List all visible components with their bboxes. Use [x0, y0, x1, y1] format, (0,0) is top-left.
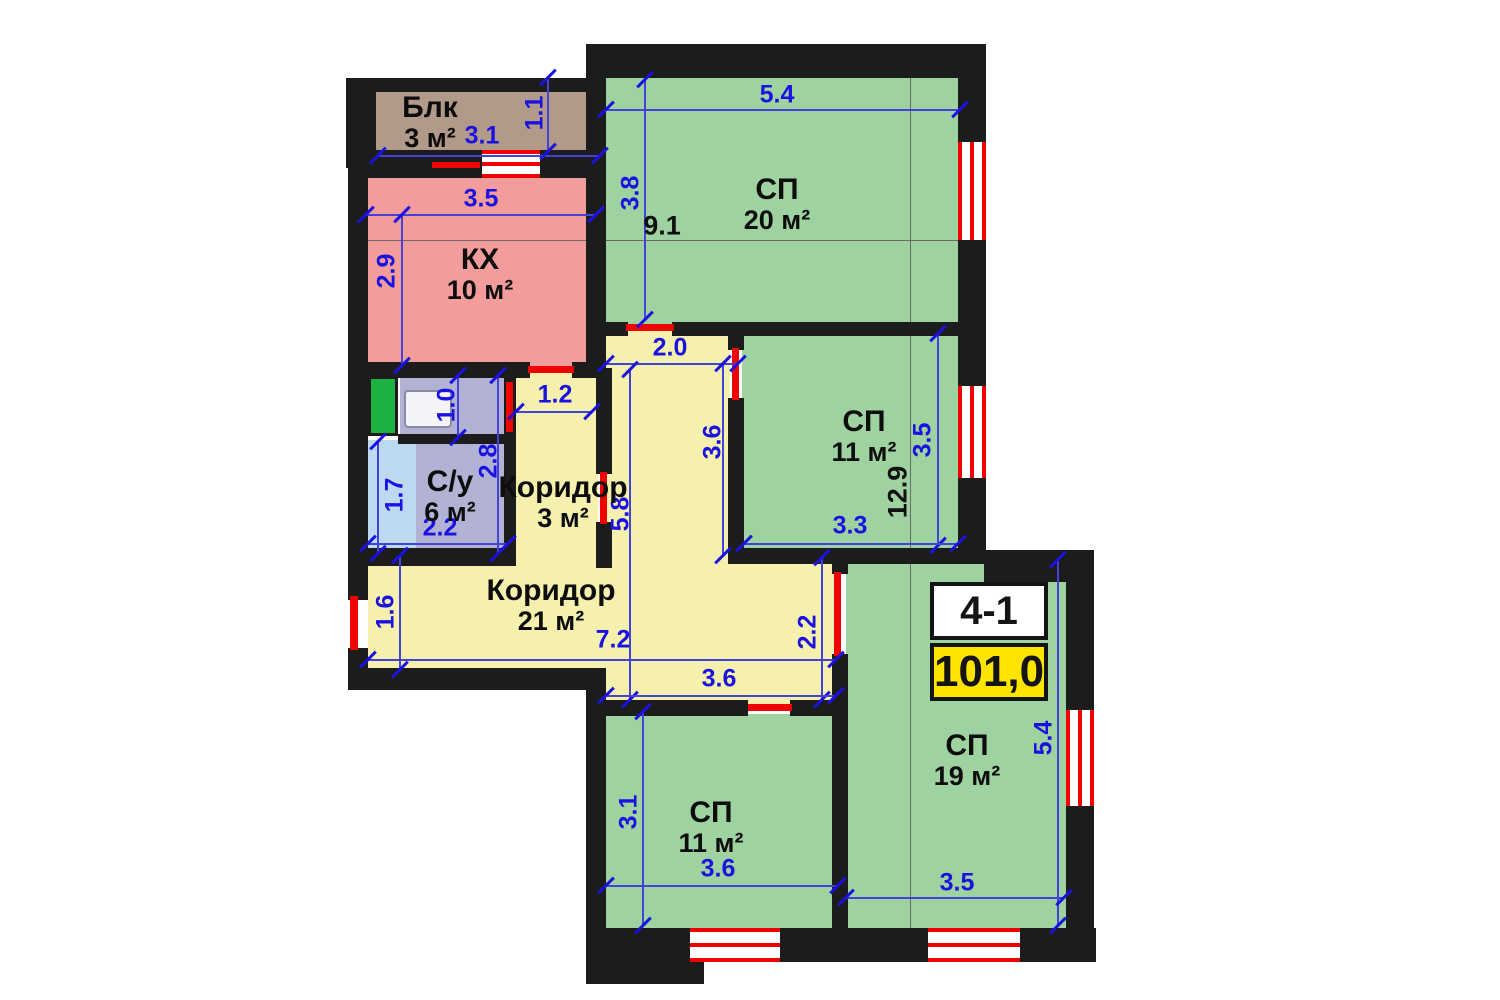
window-glazing-line: [970, 142, 974, 240]
wall: [958, 240, 986, 386]
wall: [586, 928, 690, 962]
room-name: СП: [678, 797, 743, 829]
window-glazing-line: [958, 386, 962, 478]
dimension-line: [606, 695, 836, 697]
room-label-bedroom-11-bottom: СП11 м²: [678, 797, 743, 859]
window-glazing-line: [690, 928, 780, 932]
dimension-label: 3.6: [702, 665, 737, 694]
dimension-label: 1.0: [433, 388, 462, 423]
dimension-line: [516, 411, 592, 413]
window-glazing-line: [482, 162, 540, 166]
wall: [728, 548, 986, 564]
floor-plan-canvas: 4-1 101,0 3.11.13.52.95.43.82.03.65.81.2…: [0, 0, 1500, 1000]
dimension-line: [377, 442, 379, 554]
wall: [728, 398, 744, 554]
window: [928, 928, 1020, 962]
room-label-balcony: Блк3 м²: [402, 92, 458, 154]
room-shaft: [368, 376, 398, 436]
overall-dimension-label: 12.9: [883, 466, 914, 519]
window-glazing-line: [982, 386, 986, 478]
room-name: КХ: [447, 244, 514, 276]
wall: [348, 164, 368, 380]
dimension-label: 1.1: [521, 96, 550, 131]
overall-dimension-label: 9.1: [643, 211, 681, 242]
wall: [672, 322, 964, 336]
dimension-label: 3.5: [464, 185, 499, 214]
dimension-line: [606, 885, 838, 887]
dimension-line: [368, 543, 508, 545]
room-area: 11 м²: [678, 830, 743, 859]
dimension-label: 3.6: [701, 855, 736, 884]
room-label-corridor-21: Коридор21 м²: [486, 575, 615, 637]
room-area: 6 м²: [424, 499, 475, 528]
wall: [1066, 806, 1094, 930]
wall: [348, 668, 604, 690]
window: [690, 928, 780, 962]
window-glazing-line: [928, 928, 1020, 932]
window-glazing-line: [982, 142, 986, 240]
wall: [958, 44, 986, 142]
room-name: Блк: [402, 92, 458, 124]
window-glazing-line: [1090, 710, 1094, 806]
room-label-bedroom-19: СП19 м²: [934, 730, 1001, 792]
room-name: С/у: [424, 466, 475, 498]
room-label-bedroom-20: СП20 м²: [744, 174, 811, 236]
dimension-label: 3.3: [833, 512, 868, 541]
unit-number-label: 4-1: [930, 582, 1048, 640]
wall: [604, 322, 628, 336]
window-glazing-line: [928, 958, 1020, 962]
window-glazing-line: [690, 943, 780, 947]
door-opening: [506, 382, 513, 432]
window-glazing-line: [970, 386, 974, 478]
wall: [958, 478, 986, 558]
wall: [780, 928, 928, 962]
room-label-kitchen: КХ10 м²: [447, 244, 514, 306]
dimension-label: 1.7: [381, 478, 410, 513]
wall: [1020, 928, 1096, 962]
window-glazing-line: [1078, 710, 1082, 806]
room-name: СП: [831, 406, 896, 438]
room-area: 19 м²: [934, 763, 1001, 792]
dimension-label: 3.1: [465, 122, 500, 151]
room-area: 10 м²: [447, 277, 514, 306]
wall: [348, 78, 600, 92]
room-label-bedroom-11-middle: СП11 м²: [831, 406, 896, 468]
window-glazing-line: [690, 958, 780, 962]
window: [1066, 710, 1094, 806]
room-area: 3 м²: [498, 505, 627, 534]
dimension-label: 1.2: [538, 381, 573, 410]
dimension-line: [722, 364, 724, 556]
dimension-line: [401, 215, 403, 366]
window: [958, 142, 986, 240]
wall: [586, 700, 748, 716]
room-label-bathroom: С/у6 м²: [424, 466, 475, 528]
window-glazing-line: [958, 142, 962, 240]
dimension-line: [368, 659, 836, 661]
dimension-label: 5.4: [1030, 721, 1059, 756]
dimension-line: [378, 155, 600, 157]
dimension-label: 2.0: [653, 334, 688, 363]
dimension-line: [744, 543, 958, 545]
door-opening: [732, 348, 739, 400]
window-glazing-line: [1066, 710, 1070, 806]
door-opening: [350, 596, 358, 650]
wall: [1066, 578, 1094, 710]
window: [958, 386, 986, 478]
window-glazing-line: [928, 943, 1020, 947]
dimension-label: 3.5: [940, 869, 975, 898]
dimension-label: 2.2: [794, 615, 823, 650]
unit-badge: 4-1 101,0: [930, 582, 1048, 701]
dimension-label: 3.5: [909, 423, 938, 458]
dimension-label: 1.6: [372, 595, 401, 630]
room-area: 11 м²: [831, 439, 896, 468]
dimension-label: 2.9: [373, 254, 402, 289]
room-name: Коридор: [498, 472, 627, 504]
dimension-label: 3.8: [617, 176, 646, 211]
dimension-label: 5.4: [760, 81, 795, 110]
room-area: 20 м²: [744, 207, 811, 236]
door-opening: [528, 366, 574, 373]
wall: [348, 376, 368, 560]
room-area: 3 м²: [402, 125, 458, 154]
room-name: Коридор: [486, 575, 615, 607]
door-opening: [748, 704, 792, 711]
unit-total-area-label: 101,0: [930, 643, 1048, 701]
wall: [728, 330, 744, 350]
wall: [596, 368, 612, 474]
room-label-corridor-3: Коридор3 м²: [498, 472, 627, 534]
dimension-label: 3.6: [699, 425, 728, 460]
window-glazing-line: [482, 150, 540, 154]
window-glazing-line: [482, 174, 540, 178]
door-opening: [626, 324, 674, 331]
room-name: СП: [934, 730, 1001, 762]
door-opening: [834, 572, 841, 656]
room-area: 21 м²: [486, 608, 615, 637]
room-name: СП: [744, 174, 811, 206]
door-opening: [432, 162, 480, 168]
dimension-label: 3.1: [615, 795, 644, 830]
